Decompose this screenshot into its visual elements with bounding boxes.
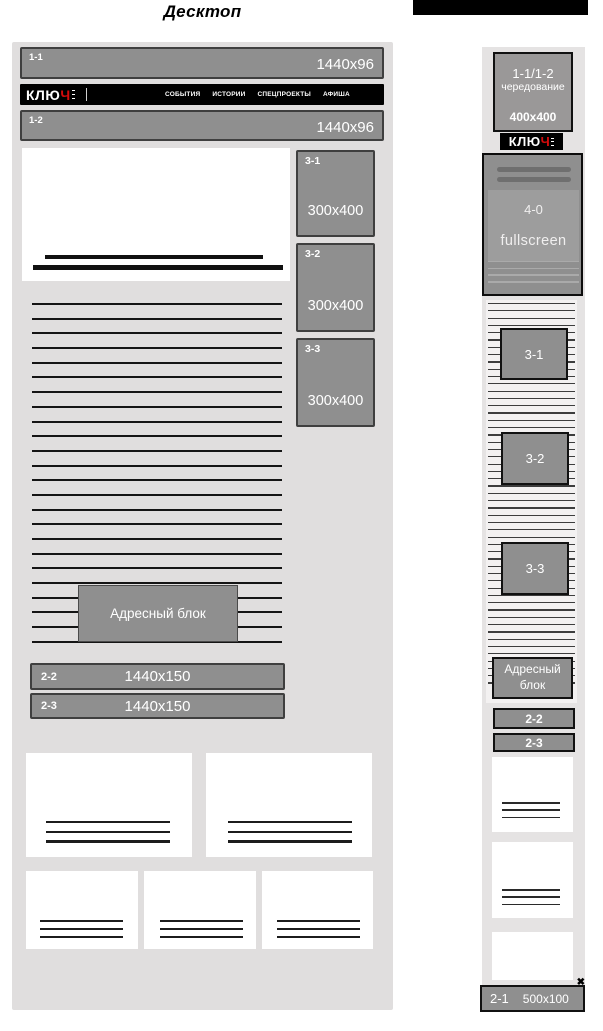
ad-banner-1-2-size: 1440x96 [316, 118, 374, 135]
card-text-lines [40, 920, 123, 944]
hero-title-line [45, 255, 263, 259]
ad-banner-3-2[interactable]: 3-2 300x400 [296, 243, 375, 332]
ad-banner-mobile-2-2[interactable]: 2-2 [493, 708, 575, 729]
rotation-banner-size: 400x400 [495, 110, 571, 124]
mobile-address-label: Адресныйблок [504, 662, 560, 693]
ad-banner-mobile-1-1-1-2[interactable]: 1-1/1-2 чередование 400x400 [493, 52, 573, 132]
card-text-lines [46, 821, 170, 850]
mobile-title-bar [413, 0, 588, 15]
fullscreen-label: 4-0 [488, 202, 579, 217]
header-divider [86, 88, 87, 101]
ad-banner-2-3-size: 1440x150 [32, 698, 283, 715]
nav-item-specials[interactable]: СПЕЦПРОЕКТЫ [258, 91, 311, 98]
fullscreen-footer-skeleton [488, 261, 579, 288]
card-text-lines [160, 920, 243, 944]
ad-banner-mobile-2-1-sticky[interactable]: 2-1 500x100 ✖ [480, 985, 585, 1012]
rotation-banner-mode: чередование [495, 81, 571, 93]
mobile-layout-panel: 1-1/1-2 чередование 400x400 КЛЮЧ 4-0 ful… [482, 47, 585, 993]
logo-accent-letter: Ч [541, 135, 551, 148]
ad-banner-3-2-label: 3-2 [305, 248, 320, 260]
logo-fine-print [72, 90, 75, 99]
logo-accent-letter: Ч [60, 88, 70, 102]
ad-banner-2-2[interactable]: 2-2 1440x150 [30, 663, 285, 690]
card-text-lines [502, 802, 560, 824]
site-header: КЛЮЧ СОБЫТИЯ ИСТОРИИ СПЕЦПРОЕКТЫ АФИША [20, 84, 384, 105]
ad-banner-2-3[interactable]: 2-3 1440x150 [30, 693, 285, 719]
mobile-article-card[interactable] [492, 842, 573, 918]
ad-banner-3-3[interactable]: 3-3 300x400 [296, 338, 375, 427]
rotation-banner-label: 1-1/1-2 [495, 66, 571, 81]
hero-title-line [33, 265, 283, 270]
article-card[interactable] [26, 871, 138, 949]
desktop-section-title: Десктоп [12, 2, 393, 22]
main-nav: СОБЫТИЯ ИСТОРИИ СПЕЦПРОЕКТЫ АФИША [165, 84, 350, 105]
logo-text: КЛЮ [26, 88, 60, 102]
fullscreen-header-skeleton [497, 167, 571, 187]
sticky-banner-size: 500x100 [523, 992, 569, 1006]
mobile-article-card[interactable] [492, 757, 573, 832]
ad-banner-2-2-label: 2-2 [41, 671, 57, 683]
ad-banner-mobile-3-1[interactable]: 3-1 [500, 328, 568, 380]
mobile-site-logo[interactable]: КЛЮЧ [500, 133, 563, 150]
ad-banner-1-1-size: 1440x96 [316, 56, 374, 73]
logo-text: КЛЮ [509, 135, 541, 148]
address-block[interactable]: Адресный блок [78, 585, 238, 642]
ad-banner-3-3-label: 3-3 [305, 343, 320, 355]
ad-banner-3-1-label: 3-1 [305, 155, 320, 167]
ad-banner-mobile-3-2[interactable]: 3-2 [501, 432, 569, 485]
logo-fine-print [551, 138, 554, 146]
site-logo[interactable]: КЛЮЧ [26, 88, 75, 102]
article-card[interactable] [26, 753, 192, 857]
ad-banner-3-1-size: 300x400 [298, 203, 373, 219]
fullscreen-mode: fullscreen [488, 233, 579, 249]
close-icon[interactable]: ✖ [577, 978, 585, 988]
ad-banner-mobile-3-1-label: 3-1 [525, 347, 544, 362]
card-text-lines [277, 920, 360, 944]
ad-banner-mobile-2-3[interactable]: 2-3 [493, 733, 575, 752]
card-text-lines [228, 821, 352, 850]
address-block-label: Адресный блок [110, 606, 206, 621]
desktop-layout-panel: 1-1 1440x96 КЛЮЧ СОБЫТИЯ ИСТОРИИ СПЕЦПРО… [12, 42, 393, 1010]
nav-item-events[interactable]: СОБЫТИЯ [165, 91, 200, 98]
ad-banner-mobile-3-3[interactable]: 3-3 [501, 542, 569, 595]
ad-banner-mobile-3-2-label: 3-2 [526, 451, 545, 466]
card-text-lines [502, 889, 560, 911]
ad-banner-1-1-label: 1-1 [29, 52, 43, 63]
nav-item-stories[interactable]: ИСТОРИИ [212, 91, 245, 98]
ad-banner-mobile-2-2-label: 2-2 [525, 712, 542, 726]
article-card[interactable] [144, 871, 256, 949]
ad-banner-3-2-size: 300x400 [298, 298, 373, 314]
ad-banner-mobile-2-3-label: 2-3 [525, 736, 542, 750]
ad-banner-1-2-label: 1-2 [29, 115, 43, 126]
ad-banner-1-2[interactable]: 1-2 1440x96 [20, 110, 384, 141]
sticky-banner-label: 2-1 [490, 991, 509, 1006]
ad-banner-1-1[interactable]: 1-1 1440x96 [20, 47, 384, 79]
mobile-address-block[interactable]: Адресныйблок [492, 657, 573, 699]
article-card[interactable] [262, 871, 373, 949]
ad-banner-2-3-label: 2-3 [41, 700, 57, 712]
hero-article-placeholder[interactable] [22, 148, 290, 281]
article-card[interactable] [206, 753, 372, 857]
ad-banner-4-0-fullscreen[interactable]: 4-0 fullscreen [482, 153, 583, 296]
ad-banner-mobile-3-3-label: 3-3 [526, 561, 545, 576]
fullscreen-ad-area: 4-0 fullscreen [488, 190, 579, 262]
ad-banner-3-1[interactable]: 3-1 300x400 [296, 150, 375, 237]
ad-banner-2-2-size: 1440x150 [32, 668, 283, 685]
ad-banner-3-3-size: 300x400 [298, 393, 373, 409]
nav-item-afisha[interactable]: АФИША [323, 91, 350, 98]
mobile-article-card[interactable] [492, 932, 573, 980]
